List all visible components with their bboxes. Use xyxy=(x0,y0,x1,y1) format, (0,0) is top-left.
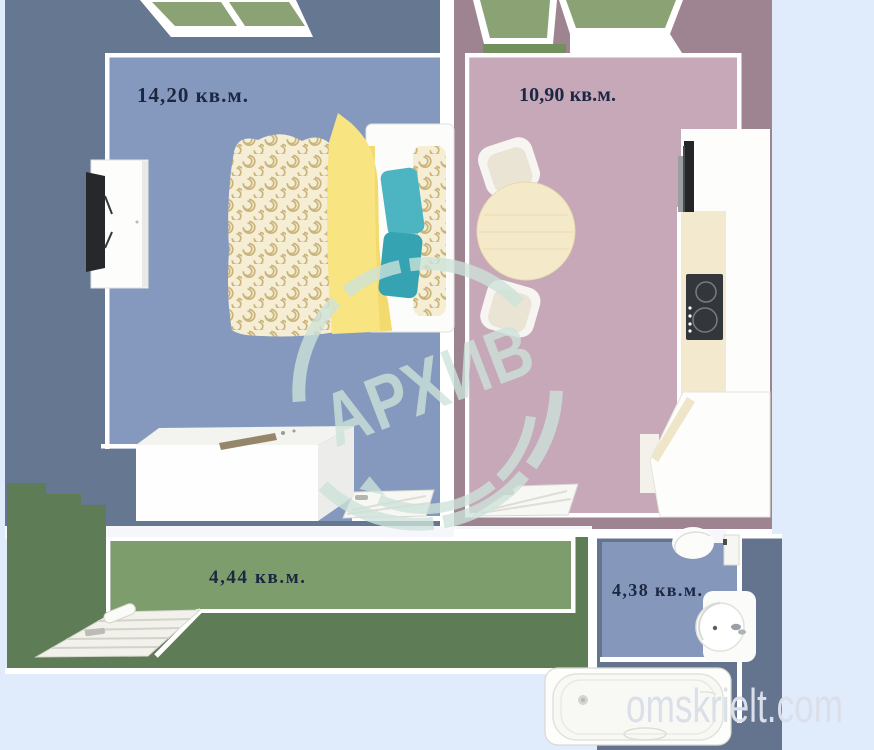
svg-text:omskrielt.com: omskrielt.com xyxy=(626,679,843,732)
svg-text:14,20 кв.м.: 14,20 кв.м. xyxy=(137,83,248,107)
svg-text:10,90 кв.м.: 10,90 кв.м. xyxy=(519,84,616,106)
svg-text:4,38 кв.м.: 4,38 кв.м. xyxy=(612,580,702,600)
svg-text:4,44 кв.м.: 4,44 кв.м. xyxy=(209,567,305,588)
